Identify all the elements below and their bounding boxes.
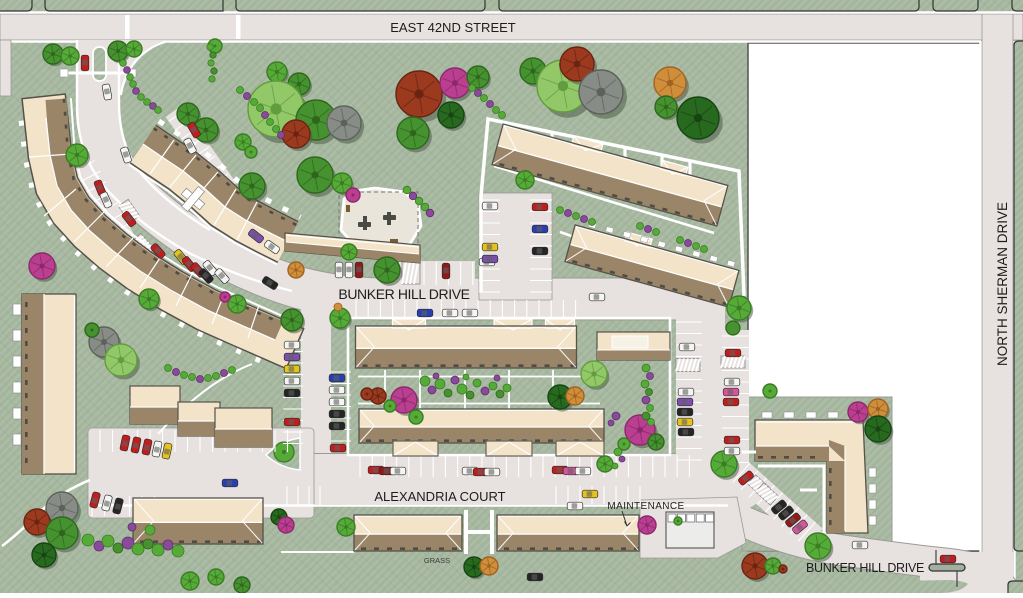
svg-text:BUNKER HILL DRIVE: BUNKER HILL DRIVE — [338, 286, 469, 302]
svg-text:EAST 42ND STREET: EAST 42ND STREET — [390, 20, 516, 35]
svg-text:BUNKER HILL DRIVE: BUNKER HILL DRIVE — [806, 561, 924, 575]
svg-text:NORTH SHERMAN DRIVE: NORTH SHERMAN DRIVE — [995, 202, 1010, 366]
svg-text:GRASS: GRASS — [424, 556, 450, 565]
svg-text:MAINTENANCE: MAINTENANCE — [607, 501, 684, 512]
svg-text:ALEXANDRIA COURT: ALEXANDRIA COURT — [374, 489, 505, 504]
